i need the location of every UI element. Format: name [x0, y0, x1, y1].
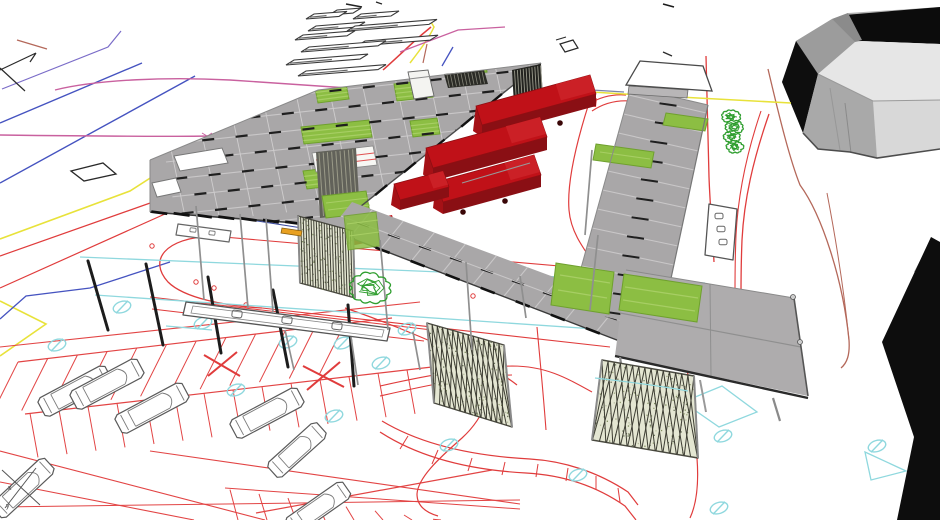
svg-text:y: y [6, 503, 10, 510]
svg-text:x: x [8, 485, 12, 492]
